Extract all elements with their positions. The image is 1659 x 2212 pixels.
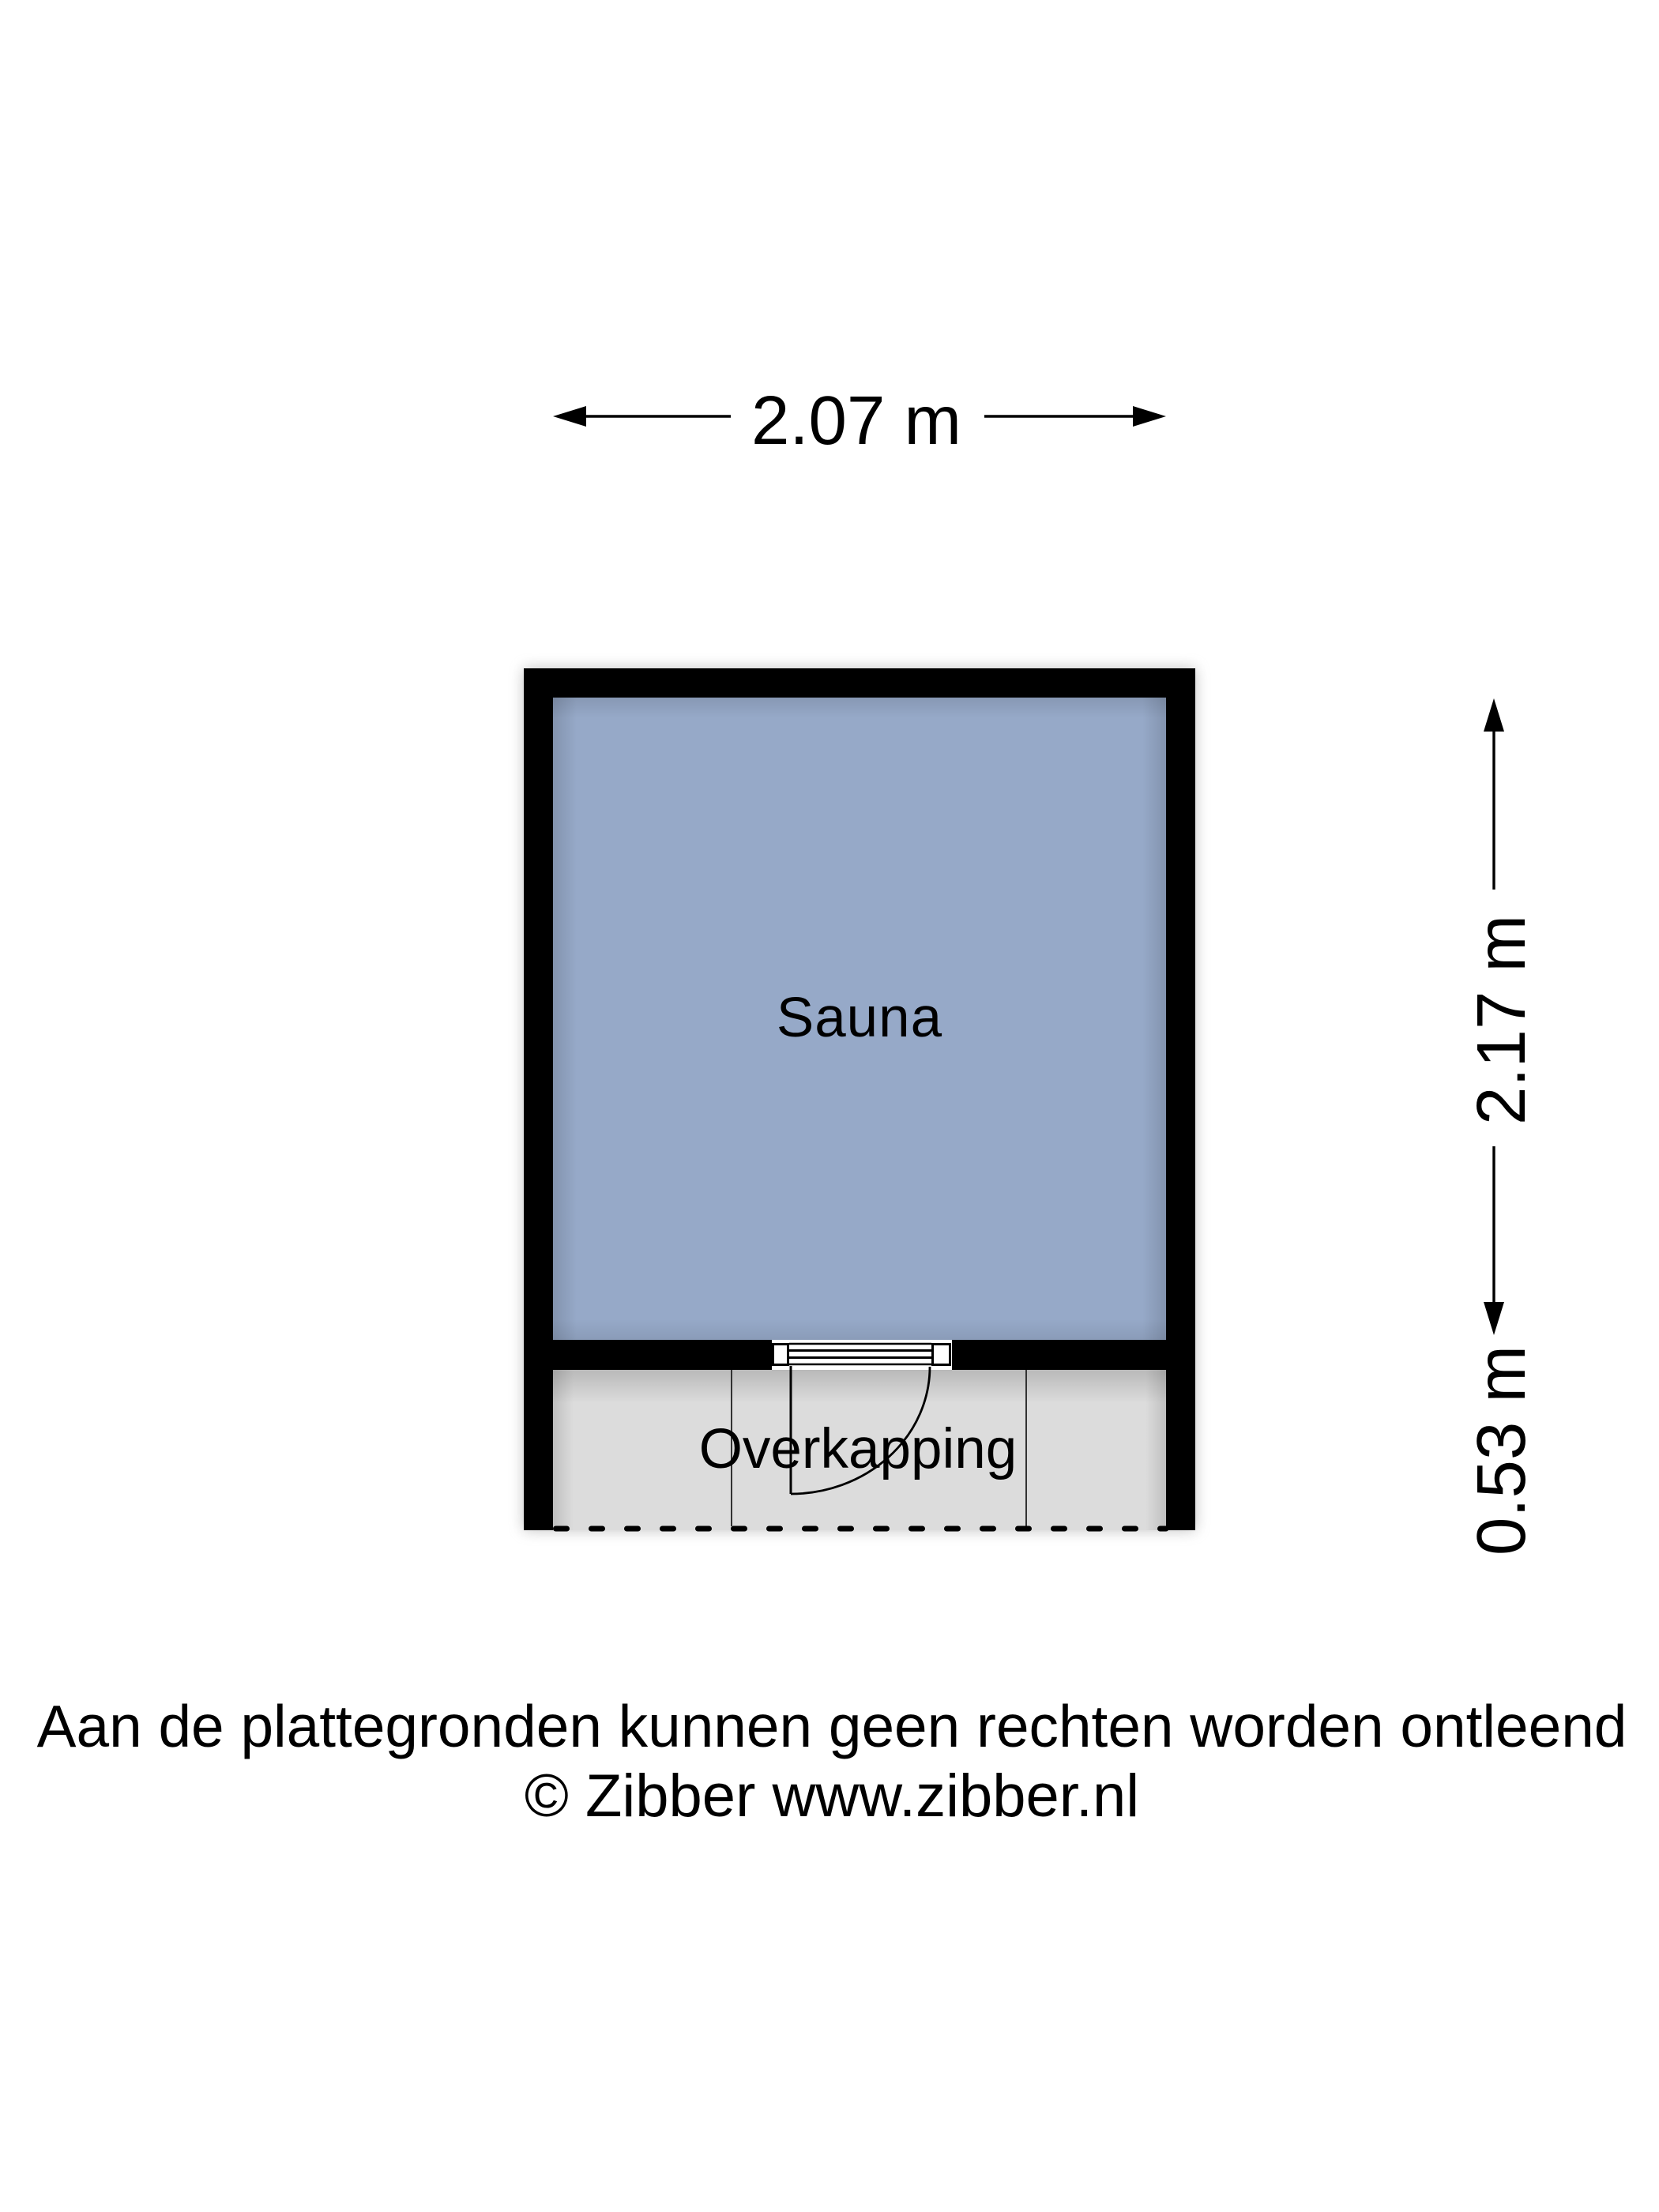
svg-text:Overkapping: Overkapping: [699, 1418, 1018, 1480]
svg-text:© Zibber www.zibber.nl: © Zibber www.zibber.nl: [525, 1762, 1139, 1830]
svg-text:Sauna: Sauna: [777, 987, 942, 1049]
svg-text:Aan de plattegronden kunnen ge: Aan de plattegronden kunnen geen rechten…: [37, 1693, 1627, 1759]
svg-text:2.07 m: 2.07 m: [751, 382, 961, 459]
svg-text:2.17 m: 2.17 m: [1463, 915, 1540, 1125]
svg-text:0.53 m: 0.53 m: [1463, 1345, 1540, 1556]
